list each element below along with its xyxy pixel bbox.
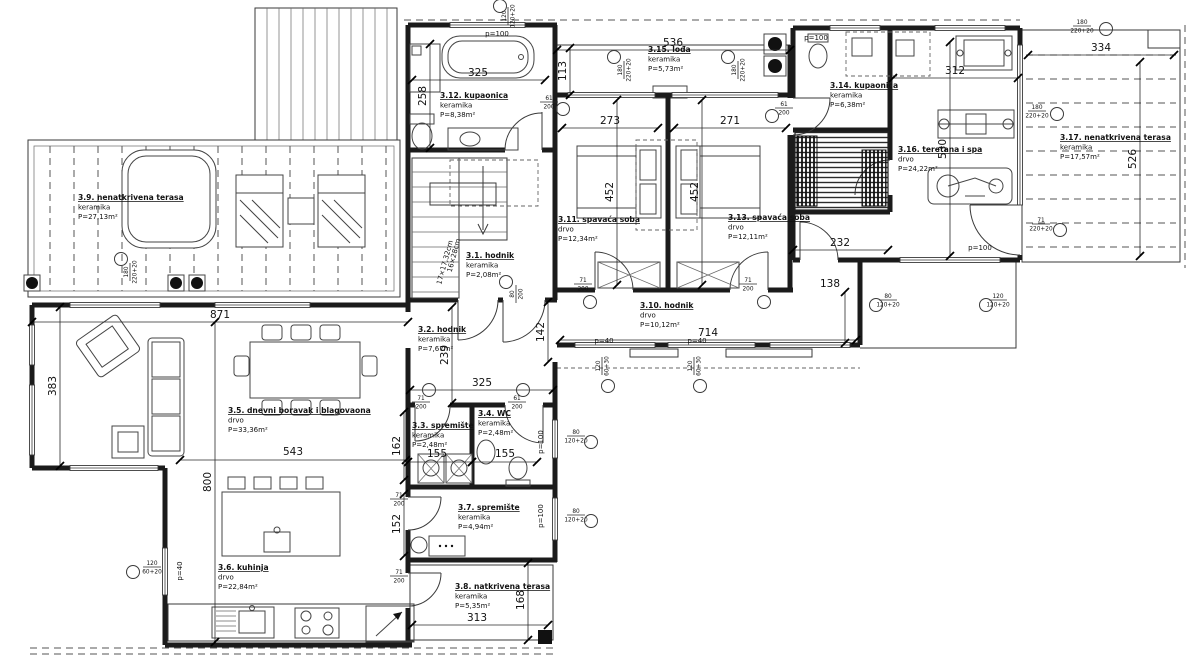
vanity-sink (448, 128, 518, 150)
opening-marker-circle (602, 380, 615, 393)
opening-tag: 71200 (739, 278, 771, 309)
window (553, 420, 558, 458)
shaft (764, 34, 786, 76)
opening-width: 71 (395, 570, 403, 576)
opening-width: 71 (395, 493, 403, 499)
chair (262, 325, 282, 340)
room-label: 3.12. kupaonicakeramikaP=8,38m² (440, 91, 508, 119)
opening-width: 80 (572, 430, 580, 436)
floor-plan-canvas: 5363251132732714524523123345265302588713… (0, 0, 1200, 656)
room-area: P=5,35m² (455, 602, 490, 610)
opening-height: 220+20 (1029, 227, 1053, 233)
room-area: P=12,11m² (728, 233, 768, 241)
opening-height: 120+20 (876, 303, 900, 309)
door (408, 497, 441, 530)
room-label: 3.17. nenatkrivena terasakeramikaP=17,57… (1060, 133, 1171, 161)
terrace-317-decking (1026, 55, 1176, 247)
room-area: P=24,22m² (898, 165, 938, 173)
kitchen-sink-unit (212, 606, 274, 639)
room-label: 3.4. WCkeramikaP=2,48m² (478, 409, 513, 437)
dimension-value: 325 (472, 377, 492, 389)
room-label: 3.3. spremištekeramikaP=2,48m² (412, 421, 474, 449)
window-sill (630, 349, 678, 357)
room-area: P=17,57m² (1060, 153, 1100, 161)
opening-marker-circle (758, 296, 771, 309)
dimension-value: 383 (47, 376, 59, 396)
opening-width: 120 (688, 360, 694, 371)
opening-marker-circle (608, 51, 621, 64)
dining-table (250, 342, 360, 398)
chair (291, 325, 311, 340)
opening-height: 220+20 (133, 260, 139, 284)
window (668, 343, 755, 348)
stove (295, 608, 339, 638)
dimension-value: 155 (427, 448, 447, 460)
room-material: keramika (440, 102, 472, 110)
opening-height: 120+20 (511, 4, 517, 28)
opening-width: 180 (732, 64, 738, 75)
room-material: keramika (455, 593, 487, 601)
dimension: 334 (1024, 42, 1178, 59)
exercise-bike (928, 168, 1012, 204)
opening-marker-circle (127, 566, 140, 579)
room-name: 3.7. spremište (458, 503, 520, 512)
room-area: P=22,84m² (218, 583, 258, 591)
roof-edge-bottom (30, 648, 553, 654)
opening-height: 200 (519, 288, 525, 299)
room-name: 3.17. nenatkrivena terasa (1060, 133, 1171, 142)
room-area: P=10,12m² (640, 321, 680, 329)
room-material: keramika (466, 262, 498, 270)
opening-width: 61 (545, 96, 553, 102)
opening-tag: 80200 (500, 276, 525, 304)
annotation: p=100 (485, 30, 509, 38)
dimension-value: 138 (820, 278, 840, 290)
dimension: 232 (789, 237, 892, 254)
dimension: 152 (391, 490, 408, 560)
room-area: P=2,08m² (466, 271, 501, 279)
dimension-value: 334 (1091, 42, 1111, 54)
toilet (506, 457, 530, 486)
opening-tag: 80120+20 (870, 294, 900, 312)
room-material: drvo (228, 417, 244, 425)
opening-height: 60+30 (605, 356, 611, 376)
annotation: p=100 (968, 244, 992, 252)
room-material: keramika (648, 56, 680, 64)
column (24, 275, 40, 291)
opening-width: 180 (618, 64, 624, 75)
room-area: P=33,36m² (228, 426, 268, 434)
window (935, 26, 1005, 31)
room-material: drvo (898, 156, 914, 164)
chair (362, 356, 377, 376)
opening-tag: 71200 (574, 278, 597, 309)
window (830, 26, 880, 31)
opening-width: 71 (1037, 218, 1045, 224)
opening-width: 80 (510, 290, 516, 298)
room-name: 3.12. kupaonica (440, 91, 508, 100)
room-name: 3.4. WC (478, 409, 511, 418)
opening-width: 120 (146, 561, 157, 567)
opening-height: 200 (415, 405, 426, 411)
opening-tag: 71200 (390, 570, 408, 585)
opening-width: 71 (417, 396, 425, 402)
dimension-value: 113 (557, 61, 569, 81)
room-material: drvo (558, 226, 574, 234)
dimension-value: 152 (391, 514, 403, 534)
dimension: 113 (557, 44, 574, 99)
opening-tag: 71200 (390, 493, 408, 508)
dimension-value: 526 (1127, 149, 1139, 169)
dimension-value: 325 (468, 67, 488, 79)
gym-equipment (928, 36, 1014, 204)
dimension-value: 142 (535, 322, 547, 342)
opening-height: 200 (742, 287, 753, 293)
room-area: P=7,67m² (418, 345, 453, 353)
kitchen-furniture (168, 477, 414, 642)
opening-marker-circle (766, 110, 779, 123)
room-name: 3.11. spavaća soba (558, 215, 640, 224)
dimension: 800 (202, 318, 219, 646)
pergola-slats (267, 8, 387, 140)
room-name: 3.6. kuhinja (218, 563, 269, 572)
side-table (112, 426, 144, 458)
room-material: keramika (1060, 144, 1092, 152)
dimension-value: 313 (467, 612, 487, 624)
door (505, 112, 542, 150)
room-material: drvo (728, 224, 744, 232)
opening-width: 71 (579, 278, 587, 284)
dimension: 168 (515, 559, 532, 644)
window (215, 303, 310, 308)
window (30, 325, 35, 365)
dimension-value: 312 (945, 65, 965, 77)
room-label: 3.15. lođakeramikaP=5,73m² (648, 45, 691, 73)
column (168, 275, 184, 291)
dimension: 325 (406, 377, 557, 394)
window (900, 258, 1000, 263)
opening-height: 200 (543, 105, 554, 111)
opening-height: 200 (393, 579, 404, 585)
room-name: 3.8. natkrivena terasa (455, 582, 550, 591)
sofa (148, 338, 184, 456)
opening-height: 220+20 (627, 58, 633, 82)
room-name: 3.14. kupaonica (830, 81, 898, 90)
lounger (318, 175, 365, 247)
window (672, 93, 778, 98)
dimension-value: 271 (720, 115, 740, 127)
windows (30, 23, 1023, 596)
room-area: P=12,34m² (558, 235, 598, 243)
door (408, 573, 441, 606)
room-label: 3.7. spremištekeramikaP=4,94m² (458, 503, 520, 531)
window (575, 343, 655, 348)
room-label: 3.1. hodnikkeramikaP=2,08m² (466, 251, 515, 279)
dryer (446, 454, 472, 483)
opening-tag: 80120+20 (564, 509, 597, 528)
opening-width: 180 (1031, 105, 1042, 111)
sauna-bench (862, 150, 886, 206)
room-label: 3.10. hodnikdrvoP=10,12m² (640, 301, 694, 329)
door (458, 300, 498, 340)
annotation: p=100 (804, 34, 828, 42)
opening-tag: 71200 (412, 384, 436, 411)
opening-height: 200 (393, 502, 404, 508)
annotation: p=40 (176, 561, 184, 580)
opening-width: 71 (744, 278, 752, 284)
terrace-317-notch (1148, 30, 1180, 48)
wardrobe (598, 262, 660, 288)
sauna (795, 132, 888, 210)
room-material: drvo (218, 574, 234, 582)
boiler (411, 537, 427, 553)
chair (234, 356, 249, 376)
room-name: 3.13. spavaća soba (728, 213, 810, 222)
room-name: 3.16. teretana i spa (898, 145, 982, 154)
bed (577, 146, 661, 218)
opening-height: 200 (577, 287, 588, 293)
opening-height: 60+30 (697, 356, 703, 376)
window (30, 385, 35, 455)
room-area: P=2,48m² (412, 441, 447, 449)
opening-tag: 71220+20 (1029, 218, 1066, 237)
opening-width: 80 (884, 294, 892, 300)
wc-sink (477, 440, 495, 464)
opening-width: 180 (124, 266, 130, 277)
washbasin (896, 40, 914, 56)
weight-bench (938, 110, 1014, 138)
room-area: P=4,94m² (458, 523, 493, 531)
opening-height: 120+20 (986, 303, 1010, 309)
room-material: keramika (412, 432, 444, 440)
opening-tag: 180220+20 (1070, 20, 1112, 36)
room-material: keramika (418, 336, 450, 344)
opening-marker-circle (500, 276, 513, 289)
dimension: 313 (408, 612, 552, 629)
dimension-value: 871 (210, 309, 230, 321)
dining-set (234, 325, 377, 415)
dimension: 162 (391, 408, 408, 484)
dimension-value: 232 (830, 237, 850, 249)
wardrobe (677, 262, 739, 288)
opening-width: 120 (992, 294, 1003, 300)
room-name: 3.2. hodnik (418, 325, 467, 334)
window (568, 93, 655, 98)
dimension-value: 800 (202, 472, 214, 492)
side-table (288, 198, 314, 224)
room-material: keramika (478, 420, 510, 428)
dimension-value: 452 (604, 182, 616, 202)
dimension-value: 258 (417, 86, 429, 106)
opening-tag: 61200 (766, 102, 794, 123)
dimension: 543 (176, 446, 410, 464)
floor-plan-drawing: 5363251132732714524523123345265302588713… (0, 0, 1200, 656)
room-material: keramika (830, 92, 862, 100)
annotation: p=100 (537, 504, 545, 528)
sauna-bench (797, 136, 817, 206)
column (189, 275, 205, 291)
room-label: 3.2. hodnikkeramikaP=7,67m² (418, 325, 467, 353)
room-area: P=5,73m² (648, 65, 683, 73)
dimension: 258 (417, 40, 434, 152)
columns (24, 275, 205, 291)
annotation: p=40 (687, 337, 706, 345)
opening-tag: 180220+20 (722, 51, 747, 82)
dimension: 383 (47, 303, 64, 470)
opening-marker-circle (1054, 224, 1067, 237)
room-name: 3.10. hodnik (640, 301, 694, 310)
room-material: keramika (458, 514, 490, 522)
opening-tag: 12060+20 (127, 561, 163, 579)
dimension: 138 (820, 278, 849, 347)
lounger (236, 175, 283, 247)
room-name: 3.1. hodnik (466, 251, 515, 260)
room-name: 3.15. lođa (648, 45, 691, 54)
opening-tag: 180220+20 (115, 253, 139, 284)
dimension: 273 (558, 115, 662, 132)
opening-marker-circle (115, 253, 128, 266)
room-label: 3.6. kuhinjadrvoP=22,84m² (218, 563, 269, 591)
opening-height: 220+20 (741, 58, 747, 82)
dimension: 239 (439, 303, 456, 407)
dimension: 155 (468, 448, 541, 466)
opening-marker-circle (694, 380, 707, 393)
opening-height: 220+20 (1070, 29, 1094, 35)
opening-width: 80 (572, 509, 580, 515)
window (1018, 45, 1023, 205)
opening-width: 180 (1076, 20, 1087, 26)
window (70, 303, 160, 308)
armchair (75, 314, 141, 379)
opening-tag: 180220+20 (1025, 105, 1063, 121)
room-area: P=27,13m² (78, 213, 118, 221)
room-label: 3.13. spavaća sobadrvoP=12,11m² (728, 213, 810, 241)
dimension-value: 155 (495, 448, 515, 460)
room-area: P=6,38m² (830, 101, 865, 109)
window (553, 498, 558, 540)
room-name: 3.9. nenatkrivena terasa (78, 193, 184, 202)
room-label: 3.5. dnevni boravak i blagovaonadrvoP=33… (228, 406, 371, 434)
dimension-value: 452 (689, 182, 701, 202)
room-area: P=2,48m² (478, 429, 513, 437)
opening-marker-circle (1100, 23, 1113, 36)
opening-tag: 12060+30 (596, 356, 615, 393)
room-label: 3.8. natkrivena terasakeramikaP=5,35m² (455, 582, 550, 610)
opening-marker-circle (722, 51, 735, 64)
opening-tag: 180220+20 (608, 51, 633, 82)
opening-marker-circle (494, 0, 507, 13)
dimension: 871 (28, 309, 412, 326)
stool (228, 477, 245, 489)
opening-height: 60+20 (142, 570, 162, 576)
dimension-value: 543 (283, 446, 303, 458)
opening-height: 200 (511, 405, 522, 411)
stool (254, 477, 271, 489)
opening-width: 61 (780, 102, 788, 108)
pergola (255, 8, 397, 140)
annotation: p=40 (594, 337, 613, 345)
window (163, 548, 168, 595)
opening-height: 200 (778, 111, 789, 117)
opening-marker-circle (584, 296, 597, 309)
storage-37-fixtures (411, 536, 465, 556)
room-area: P=8,38m² (440, 111, 475, 119)
room-name: 3.3. spremište (412, 421, 474, 430)
room-material: keramika (78, 204, 110, 212)
dimension: 271 (670, 115, 790, 132)
annotation: p=100 (537, 430, 545, 454)
dimension-value: 168 (515, 590, 527, 610)
chair (320, 325, 340, 340)
window (70, 466, 158, 471)
dimension: 142 (535, 298, 552, 366)
stool (306, 477, 323, 489)
wc-fixtures (477, 440, 530, 486)
stool (280, 477, 297, 489)
living-furniture (75, 314, 377, 458)
washbasin (852, 38, 872, 56)
pergola-frame (255, 8, 397, 140)
opening-tag: 61200 (508, 384, 530, 411)
opening-height: 220+20 (1025, 114, 1049, 120)
opening-marker-circle (1051, 108, 1064, 121)
kitchen-island (222, 477, 340, 556)
dimension: 526 (1127, 58, 1144, 260)
room-material: drvo (640, 312, 656, 320)
window (770, 343, 850, 348)
dimension-value: 162 (391, 436, 403, 456)
opening-width: 120 (596, 360, 602, 371)
opening-width: 61 (513, 396, 521, 402)
room-name: 3.5. dnevni boravak i blagovaona (228, 406, 371, 415)
opening-tag: 120120+20 (980, 294, 1010, 312)
opening-tag: 12060+30 (688, 356, 707, 393)
room-label: 3.11. spavaća sobadrvoP=12,34m² (558, 215, 640, 243)
window-sill (726, 349, 812, 357)
opening-tag: 80120+20 (564, 430, 597, 449)
opening-marker-circle (557, 103, 570, 116)
column (538, 630, 552, 644)
door (595, 252, 633, 290)
shower (410, 44, 440, 92)
